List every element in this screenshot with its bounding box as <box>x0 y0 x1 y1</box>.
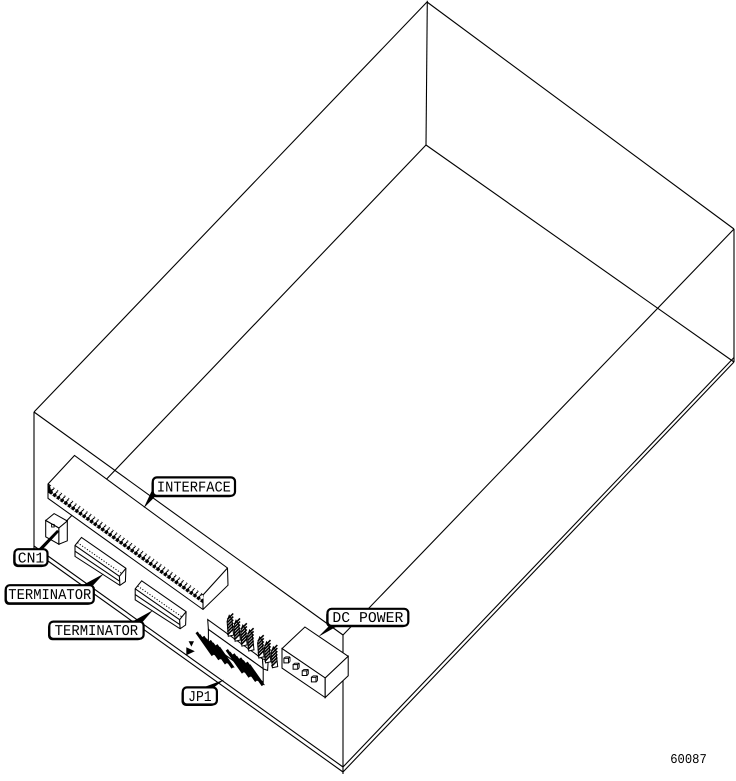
svg-text:TERMINATOR: TERMINATOR <box>55 623 139 640</box>
svg-text:JP1: JP1 <box>188 689 212 706</box>
svg-text:TERMINATOR: TERMINATOR <box>8 587 91 604</box>
svg-text:INTERFACE: INTERFACE <box>157 480 231 497</box>
svg-text:CN1: CN1 <box>18 550 45 567</box>
svg-text:DC POWER: DC POWER <box>332 610 403 627</box>
svg-text:60087: 60087 <box>670 753 707 768</box>
